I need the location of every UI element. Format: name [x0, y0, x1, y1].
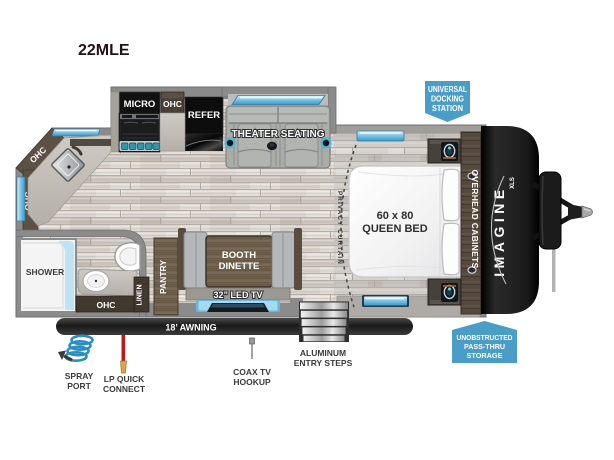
svg-text:ENTRY STEPS: ENTRY STEPS: [294, 358, 353, 368]
svg-text:COAX TV: COAX TV: [233, 367, 271, 377]
svg-text:UNOBSTRUCTED: UNOBSTRUCTED: [457, 333, 513, 342]
svg-text:ALUMINUM: ALUMINUM: [300, 348, 346, 358]
svg-text:PRIVACY CURTAIN: PRIVACY CURTAIN: [336, 191, 343, 265]
svg-text:THEATER SEATING: THEATER SEATING: [232, 129, 325, 140]
svg-text:LP QUICK: LP QUICK: [104, 374, 145, 384]
svg-text:BOOTH: BOOTH: [222, 250, 256, 261]
svg-text:22MLE: 22MLE: [78, 42, 130, 59]
svg-text:60 x 80: 60 x 80: [377, 210, 414, 222]
svg-text:REFER: REFER: [188, 110, 220, 121]
svg-text:QUEEN BED: QUEEN BED: [362, 223, 427, 235]
svg-text:PANTRY: PANTRY: [158, 260, 168, 294]
svg-text:UNIVERSAL: UNIVERSAL: [428, 85, 467, 94]
svg-text:SPRAY: SPRAY: [65, 371, 94, 381]
svg-text:18’ AWNING: 18’ AWNING: [165, 323, 216, 333]
svg-text:DINETTE: DINETTE: [219, 261, 260, 272]
svg-text:32” LED TV: 32” LED TV: [213, 290, 262, 300]
svg-text:OHC: OHC: [163, 99, 182, 109]
svg-text:XLS: XLS: [510, 177, 516, 189]
svg-text:STORAGE: STORAGE: [467, 351, 503, 360]
svg-text:PORT: PORT: [67, 381, 91, 391]
svg-text:CONNECT: CONNECT: [103, 384, 146, 394]
svg-text:STATION: STATION: [432, 104, 463, 113]
svg-text:HOOKUP: HOOKUP: [233, 377, 271, 387]
svg-text:SHOWER: SHOWER: [26, 267, 64, 277]
svg-text:MICRO: MICRO: [124, 99, 156, 110]
svg-text:IMAGINE: IMAGINE: [491, 185, 507, 276]
svg-text:DOCKING: DOCKING: [431, 95, 464, 104]
svg-text:OHC: OHC: [97, 300, 116, 310]
svg-text:PASS-THRU: PASS-THRU: [464, 342, 505, 351]
svg-text:OVERHEAD CABINETS: OVERHEAD CABINETS: [470, 169, 480, 268]
svg-text:LINEN: LINEN: [137, 285, 144, 306]
